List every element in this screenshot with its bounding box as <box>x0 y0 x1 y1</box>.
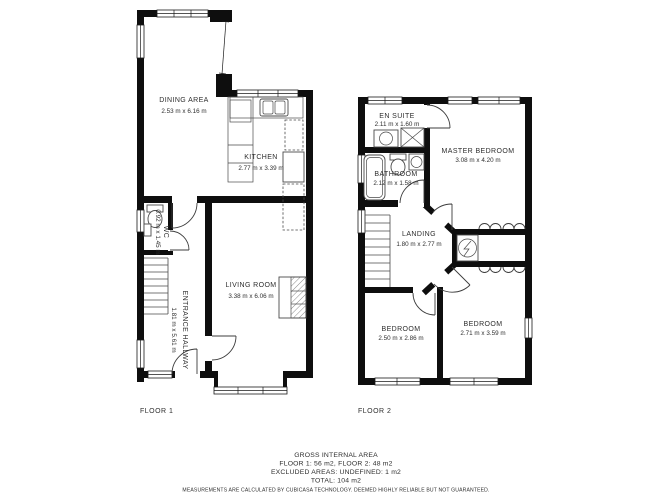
master-bedroom-dims: 3.08 m x 4.20 m <box>455 157 500 164</box>
stairs-floor2 <box>365 215 390 287</box>
floorplan-page: DINING AREA 2.53 m x 6.16 m KITCHEN 2.77… <box>0 0 668 501</box>
summary-disclaimer: MEASUREMENTS ARE CALCULATED BY CUBICASA … <box>182 488 489 494</box>
glass-wall <box>219 21 229 74</box>
stairs-floor1 <box>144 258 168 314</box>
ensuite-door-arc <box>427 105 450 128</box>
summary-floors: FLOOR 1: 56 m2, FLOOR 2: 48 m2 <box>279 461 392 468</box>
dining-door-arc <box>172 203 197 228</box>
floor1-windows <box>137 10 298 378</box>
living-room-dims: 3.38 m x 6.06 m <box>228 293 273 300</box>
kitchen-fixtures <box>228 97 304 230</box>
wc-label: WC <box>162 226 169 238</box>
summary-excluded: EXCLUDED AREAS: UNDEFINED: 1 m2 <box>271 469 401 476</box>
entrance-hallway-dims: 1.81 m x 5.61 m <box>170 307 177 352</box>
wc-sink-icon <box>144 224 151 236</box>
kitchen-label: KITCHEN <box>244 154 278 161</box>
bedroom-right-label: BEDROOM <box>464 321 503 328</box>
summary-title: GROSS INTERNAL AREA <box>294 452 378 459</box>
ensuite-fixtures <box>374 128 424 147</box>
bedroom-left-door-arc <box>413 293 435 315</box>
entrance-hallway-label: ENTRANCE HALLWAY <box>181 290 188 369</box>
oven-icon <box>283 152 304 182</box>
area-summary: GROSS INTERNAL AREA FLOOR 1: 56 m2, FLOO… <box>182 452 489 494</box>
landing-dims: 1.80 m x 2.77 m <box>396 241 441 248</box>
floor2-plan: EN SUITE 2.11 m x 1.60 m BATHROOM 2.12 m… <box>358 97 532 415</box>
living-room-label: LIVING ROOM <box>225 282 276 289</box>
bathroom-label: BATHROOM <box>374 171 417 178</box>
bedroom-left-dims: 2.50 m x 2.86 m <box>378 335 423 342</box>
floor2-label: FLOOR 2 <box>358 408 391 415</box>
floor1-label: FLOOR 1 <box>140 408 173 415</box>
cabinet-dashed <box>285 120 303 150</box>
floorplan-canvas: DINING AREA 2.53 m x 6.16 m KITCHEN 2.77… <box>0 0 668 501</box>
floor1-walls <box>137 10 313 382</box>
wc-dims: 0.92 m x 1.45 m <box>154 209 161 254</box>
bedroom-left-label: BEDROOM <box>382 326 421 333</box>
kitchen-sink-icon <box>260 99 288 116</box>
water-heater <box>457 235 478 261</box>
floor1-plan: DINING AREA 2.53 m x 6.16 m KITCHEN 2.77… <box>137 10 313 415</box>
bathroom-dims: 2.12 m x 1.58 m <box>373 180 418 187</box>
dining-area-label: DINING AREA <box>159 97 209 104</box>
kitchen-dims: 2.77 m x 3.39 m <box>238 165 283 172</box>
cabinet-dashed-2 <box>283 184 304 230</box>
fireplace <box>279 277 306 318</box>
ensuite-label: EN SUITE <box>379 113 414 120</box>
landing-label: LANDING <box>402 231 436 238</box>
dining-area-dims: 2.53 m x 6.16 m <box>161 108 206 115</box>
master-bedroom-label: MASTER BEDROOM <box>442 148 515 155</box>
ensuite-dims: 2.11 m x 1.60 m <box>375 121 420 128</box>
summary-total: TOTAL: 104 m2 <box>311 478 361 485</box>
bedroom-right-dims: 2.71 m x 3.59 m <box>460 330 505 337</box>
ensuite-vanity <box>374 130 398 147</box>
living-door-arc <box>212 336 236 360</box>
hob-icon <box>230 100 251 122</box>
